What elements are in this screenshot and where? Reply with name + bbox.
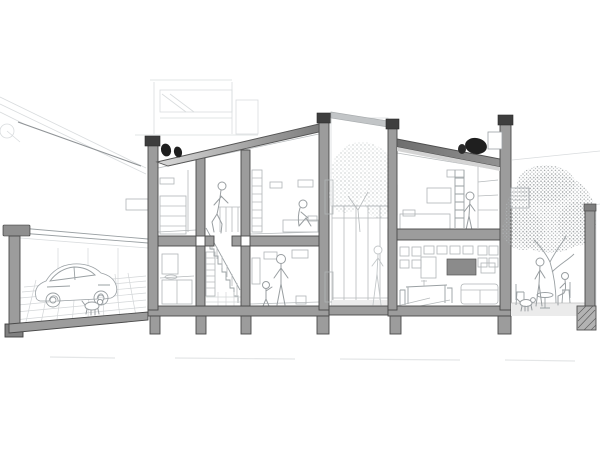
wall-stair-right [241, 150, 250, 236]
figure-adult-standing [274, 255, 288, 306]
stair-landing-stub [205, 236, 214, 246]
mirror [162, 254, 178, 274]
pier-f [498, 316, 511, 334]
courtyard [329, 112, 392, 315]
figure-bedroom-right [464, 192, 475, 230]
boundary-wall-cap [584, 204, 596, 211]
wall-party-left-cap [317, 113, 331, 123]
section-drawing: Architectural sectional perspective draw… [0, 0, 600, 450]
figure-courtyard [372, 246, 383, 305]
living-room [397, 246, 498, 306]
figure-garden-standing [535, 258, 545, 306]
pier-a [150, 316, 160, 334]
garage-slab [9, 312, 148, 333]
neighbor-roof [0, 97, 146, 174]
ground-slab-right-building [388, 306, 511, 316]
wardrobe [160, 196, 186, 234]
roof-left [157, 124, 319, 166]
boundary-footing [577, 306, 596, 330]
stair-landing-stub2 [232, 236, 241, 246]
background-volume-roof [331, 112, 388, 127]
wall-stair-left [196, 158, 205, 236]
figure-sitting-bedroom [298, 200, 311, 226]
loft-closet [478, 165, 498, 228]
carport [3, 225, 148, 337]
side-cabinet [481, 263, 495, 273]
pier-e [390, 316, 401, 334]
rooftop-ac-unit [458, 132, 502, 156]
mid-slab-right [250, 236, 319, 246]
staircase [206, 207, 240, 303]
framed-art [421, 257, 436, 278]
carport-wall [9, 236, 20, 324]
car [35, 264, 116, 307]
bedroom-upper-right [250, 170, 319, 234]
pier-d [317, 316, 329, 334]
tree-courtyard [329, 142, 392, 232]
window [252, 258, 260, 284]
wall-left-cap [145, 136, 160, 146]
bedroom-loft [388, 165, 498, 229]
left-building [126, 113, 333, 334]
background-dormer [135, 80, 258, 135]
garden [502, 165, 596, 330]
mid-slab-right-building [388, 229, 511, 240]
tv-screen [447, 259, 476, 275]
wall-right-left-cap [386, 119, 399, 129]
garden-table [537, 293, 553, 298]
bed [283, 220, 318, 232]
pier-c [241, 316, 251, 334]
wall-art [427, 188, 451, 203]
wall-party-left [319, 122, 329, 310]
ground-slab-left [148, 306, 329, 316]
pier-b [196, 316, 206, 334]
shelf-unit [252, 170, 262, 232]
bedroom-upper-left [158, 170, 196, 234]
mid-slab-left [158, 236, 196, 246]
wall-right-building-left [388, 128, 397, 310]
sofa [461, 284, 498, 304]
carport-roof-edge [20, 228, 148, 243]
figure-child [263, 282, 273, 307]
section-drawing-page: Architectural sectional perspective draw… [0, 0, 600, 450]
roof-vent-units [160, 142, 184, 158]
ground-line-dashes [50, 357, 575, 361]
wall-right-right-cap [498, 115, 513, 125]
bathroom [160, 254, 194, 304]
boundary-wall [585, 208, 595, 308]
wall-left-exterior [148, 145, 158, 310]
tree-garden [502, 165, 596, 303]
carport-wall-cap [3, 225, 30, 236]
courtyard-slab [329, 306, 388, 315]
gutter-box [126, 199, 148, 210]
loft-ladder [455, 170, 464, 228]
figure-garden-sitting [558, 273, 569, 306]
